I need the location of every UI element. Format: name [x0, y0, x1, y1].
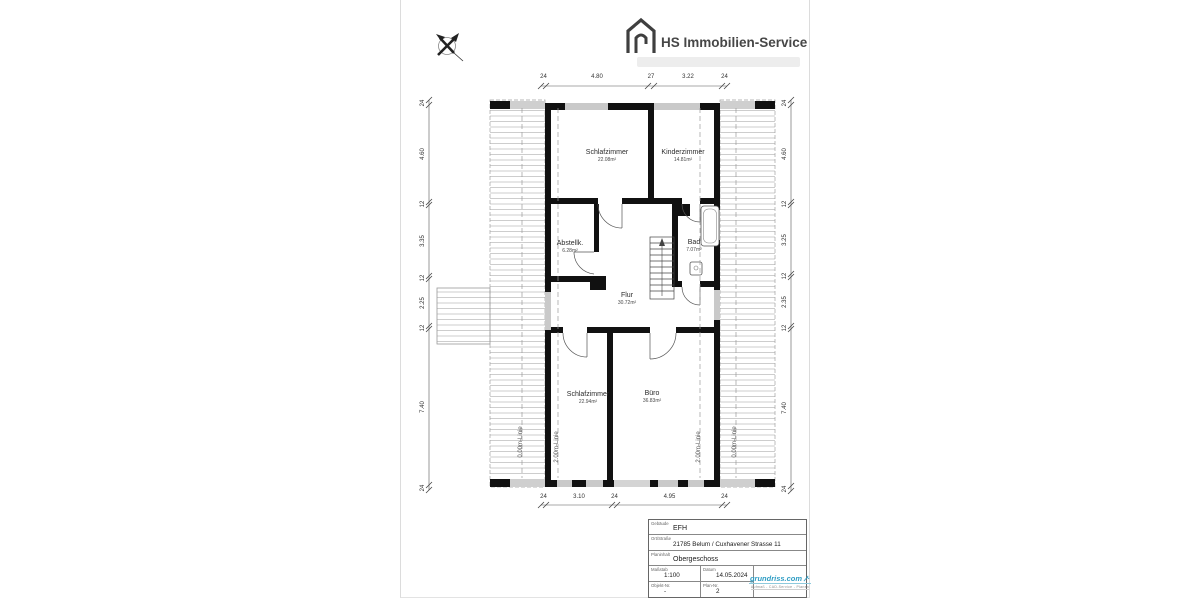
dimension-label: 4.95 [664, 494, 676, 500]
dimension-label: 4.80 [591, 74, 603, 80]
room-label: Bad7.07m² [686, 239, 702, 253]
hs-logo-house-icon [628, 20, 654, 53]
gebaeude-value: EFH [673, 525, 687, 532]
planinhalt-value: Obergeschoss [673, 556, 718, 563]
title-cell-datum: Datum 14.05.2024 [701, 566, 754, 582]
north-arrow-icon [436, 33, 463, 61]
dimension-label: 2.25 [420, 297, 426, 309]
dimension-label: 12 [420, 324, 426, 331]
grundriss-logo: grundriss.com Aufmaß - CAD-Service - Pla… [754, 566, 806, 597]
logo-shadow-bar [637, 57, 800, 67]
dimension-label: 12 [782, 200, 788, 207]
room-name: Flur [618, 292, 636, 300]
plan-nr-value: 2 [716, 588, 720, 595]
room-area: 6.28m² [557, 248, 583, 254]
height-line-label: 2.00m-Linie [696, 431, 702, 462]
title-cell-plan-nr: Plan-Nr. 2 [701, 582, 754, 597]
bathtub-icon [701, 206, 719, 246]
staircase [650, 237, 674, 299]
dimension-label: 12 [420, 274, 426, 281]
dimension-label: 12 [420, 200, 426, 207]
dimension-label: 24 [721, 74, 728, 80]
room-label: Flur30.72m² [618, 292, 636, 306]
room-area: 30.72m² [618, 300, 636, 306]
room-label: Kinderzimmer14.81m² [661, 149, 704, 163]
dimension-label: 2.35 [782, 296, 788, 308]
dimension-label: 7.40 [420, 401, 426, 413]
room-name: Bad [686, 239, 702, 247]
title-block: Gebäude EFH Ort/Straße 21785 Belum / Cux… [648, 519, 807, 598]
objekt-value: - [664, 588, 666, 595]
massstab-value: 1:100 [664, 572, 680, 579]
height-line-label: 2.00m-Linie [554, 431, 560, 462]
room-area: 22.08m² [586, 157, 628, 163]
room-name: Kinderzimmer [661, 149, 704, 157]
ort-label: Ort/Straße [651, 536, 671, 541]
dimension-label: 24 [420, 99, 426, 106]
roof-area-right [720, 100, 775, 487]
room-area: 7.07m² [686, 247, 702, 253]
room-label: Abstellk.6.28m² [557, 240, 583, 254]
room-name: Büro [643, 390, 661, 398]
dimension-label: 24 [540, 494, 547, 500]
dimension-label: 12 [782, 324, 788, 331]
floor-plan-drawing [0, 0, 1200, 600]
dimension-label: 4.60 [782, 148, 788, 160]
planinhalt-label: Planinhalt [651, 552, 670, 557]
dimension-label: 27 [648, 74, 655, 80]
datum-value: 14.05.2024 [716, 572, 748, 579]
height-line-label: 0.00m-Linie [732, 426, 738, 457]
dimension-label: 4.60 [420, 148, 426, 160]
title-cell-massstab: Maßstab 1:100 [649, 566, 701, 582]
dimension-label: 3.22 [682, 74, 694, 80]
dimension-label: 3.25 [782, 234, 788, 246]
gebaeude-label: Gebäude [651, 521, 669, 526]
height-line-label: 0.00m-Linie [518, 426, 524, 457]
datum-label: Datum [703, 567, 716, 572]
room-label: Schlafzimmer22.08m² [586, 149, 628, 163]
brand-title: HS Immobilien-Service [661, 35, 807, 50]
pen-icon [803, 575, 810, 582]
dimension-label: 24 [420, 484, 426, 491]
title-cell-objekt: Objekt-Nr. - [649, 582, 701, 597]
dimension-label: 24 [540, 74, 547, 80]
grundriss-logo-tagline: Aufmaß - CAD-Service - Planen [751, 585, 809, 590]
room-name: Schlafzimmer [567, 391, 609, 399]
balcony [437, 288, 490, 344]
room-name: Abstellk. [557, 240, 583, 248]
dimension-label: 24 [782, 485, 788, 492]
dimension-label: 3.35 [420, 235, 426, 247]
room-label: Büro36.83m² [643, 390, 661, 404]
grundriss-logo-wordmark: grundriss.com [750, 574, 802, 583]
dimension-label: 7.40 [782, 402, 788, 414]
room-area: 36.83m² [643, 398, 661, 404]
ort-value: 21785 Belum / Cuxhavener Strasse 11 [673, 541, 781, 548]
dimension-label: 24 [721, 494, 728, 500]
room-area: 22.94m² [567, 399, 609, 405]
title-row-gebaeude: Gebäude EFH [649, 520, 806, 535]
room-label: Schlafzimmer22.94m² [567, 391, 609, 405]
floor-plan-page: HS Immobilien-Service Schlafzimmer22.08m… [0, 0, 1200, 600]
dimension-label: 3.10 [573, 494, 585, 500]
room-name: Schlafzimmer [586, 149, 628, 157]
objekt-label: Objekt-Nr. [651, 583, 670, 588]
title-row-planinhalt: Planinhalt Obergeschoss [649, 551, 806, 566]
dimension-label: 24 [611, 494, 618, 500]
title-row-ort: Ort/Straße 21785 Belum / Cuxhavener Stra… [649, 535, 806, 551]
dimension-label: 24 [782, 99, 788, 106]
dimension-label: 12 [782, 272, 788, 279]
room-area: 14.81m² [661, 157, 704, 163]
grundriss-logo-text: grundriss.com [749, 574, 811, 584]
